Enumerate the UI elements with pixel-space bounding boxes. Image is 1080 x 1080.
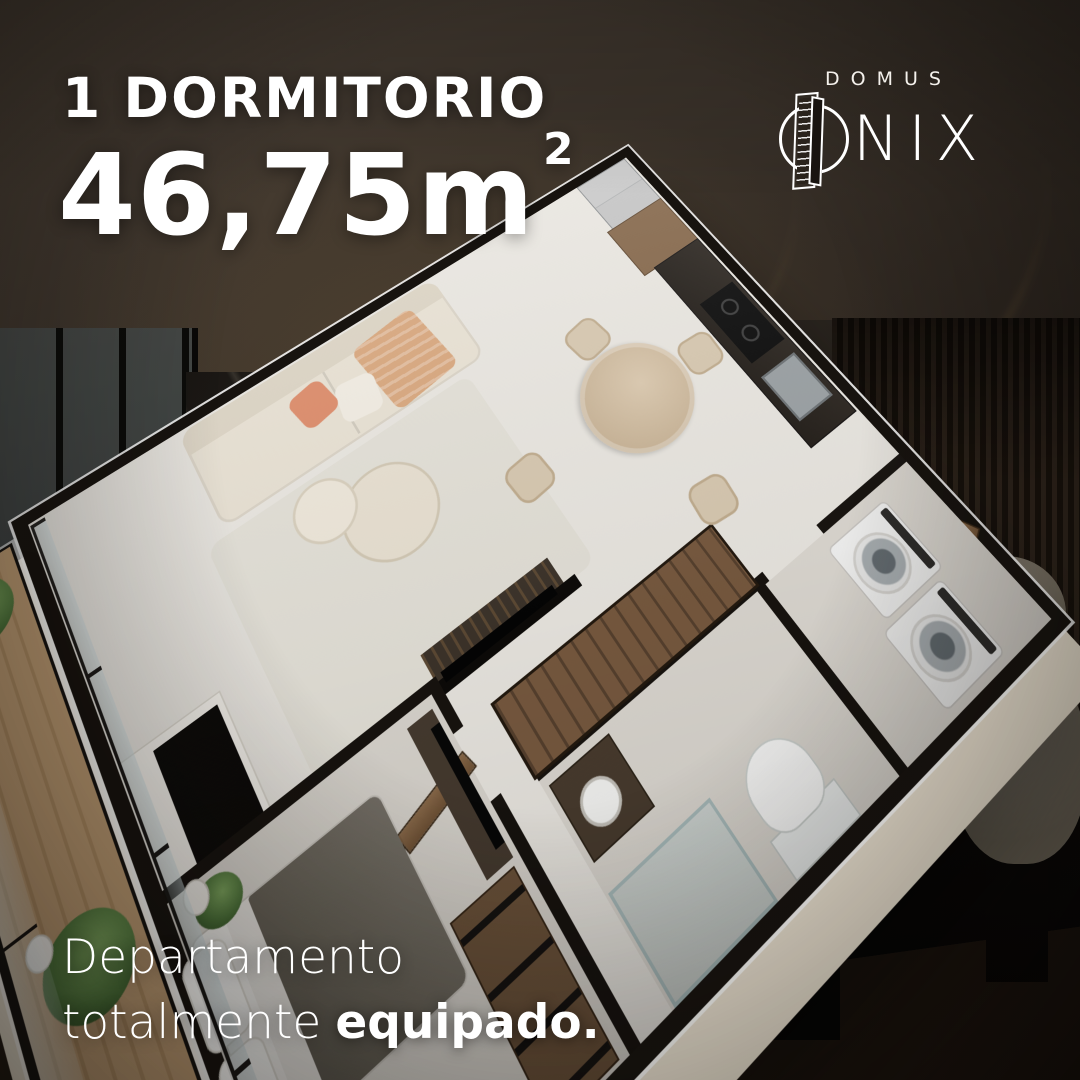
footer-line2-bold: equipado. bbox=[335, 995, 599, 1050]
bedrooms-title: 1 DORMITORIO bbox=[62, 66, 547, 130]
logo-building-icon bbox=[779, 104, 849, 174]
footer-caption: Departamento totalmenteequipado. bbox=[62, 926, 600, 1056]
sink-basin bbox=[572, 766, 631, 837]
footer-line2-regular: totalmente bbox=[62, 995, 321, 1050]
dining-chair bbox=[684, 469, 744, 530]
brand-logo: DOMUS NIX bbox=[758, 68, 1008, 178]
footer-line1: Departamento bbox=[62, 926, 600, 991]
area-superscript: 2 bbox=[543, 124, 575, 175]
area-number: 46,75m bbox=[58, 131, 535, 261]
footer-line2: totalmenteequipado. bbox=[62, 991, 600, 1056]
brand-word-domus: DOMUS bbox=[758, 68, 1008, 90]
area-value: 46,75m2 bbox=[58, 126, 575, 258]
poster-canvas: 1 DORMITORIO 46,75m2 DOMUS NIX Departame… bbox=[0, 0, 1080, 1080]
brand-word-onix: NIX bbox=[853, 108, 987, 170]
balcony-plant bbox=[0, 562, 23, 671]
